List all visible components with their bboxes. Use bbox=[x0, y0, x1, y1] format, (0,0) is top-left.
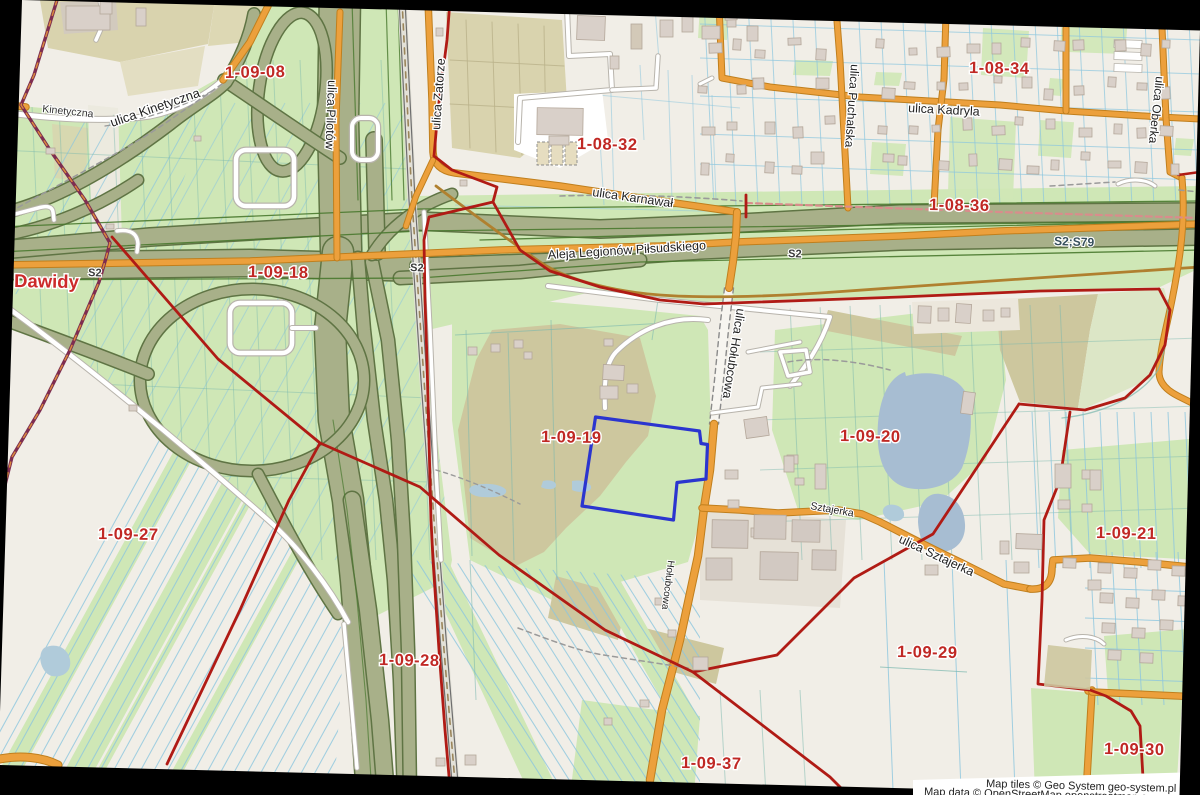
svg-text:S2: S2 bbox=[88, 267, 102, 279]
svg-text:S2: S2 bbox=[410, 262, 424, 274]
svg-text:1-08-34: 1-08-34 bbox=[969, 59, 1030, 78]
svg-text:Dawidy: Dawidy bbox=[14, 270, 80, 292]
svg-text:S2: S2 bbox=[788, 248, 802, 260]
svg-text:1-09-20: 1-09-20 bbox=[840, 427, 901, 446]
svg-text:1-09-30: 1-09-30 bbox=[1104, 740, 1165, 759]
svg-text:1-09-29: 1-09-29 bbox=[897, 643, 958, 662]
svg-text:1-08-32: 1-08-32 bbox=[577, 135, 638, 154]
svg-text:1-09-21: 1-09-21 bbox=[1096, 524, 1157, 543]
svg-text:1-09-37: 1-09-37 bbox=[681, 754, 742, 773]
svg-text:1-09-27: 1-09-27 bbox=[98, 525, 159, 544]
svg-text:1-08-36: 1-08-36 bbox=[929, 196, 990, 215]
svg-text:S2;S79: S2;S79 bbox=[1054, 234, 1095, 249]
svg-text:1-09-08: 1-09-08 bbox=[225, 63, 286, 82]
svg-text:1-09-19: 1-09-19 bbox=[541, 428, 602, 447]
svg-text:1-09-28: 1-09-28 bbox=[379, 651, 440, 670]
svg-text:1-09-18: 1-09-18 bbox=[248, 263, 309, 282]
svg-text:ulica Pilotów: ulica Pilotów bbox=[323, 80, 339, 151]
